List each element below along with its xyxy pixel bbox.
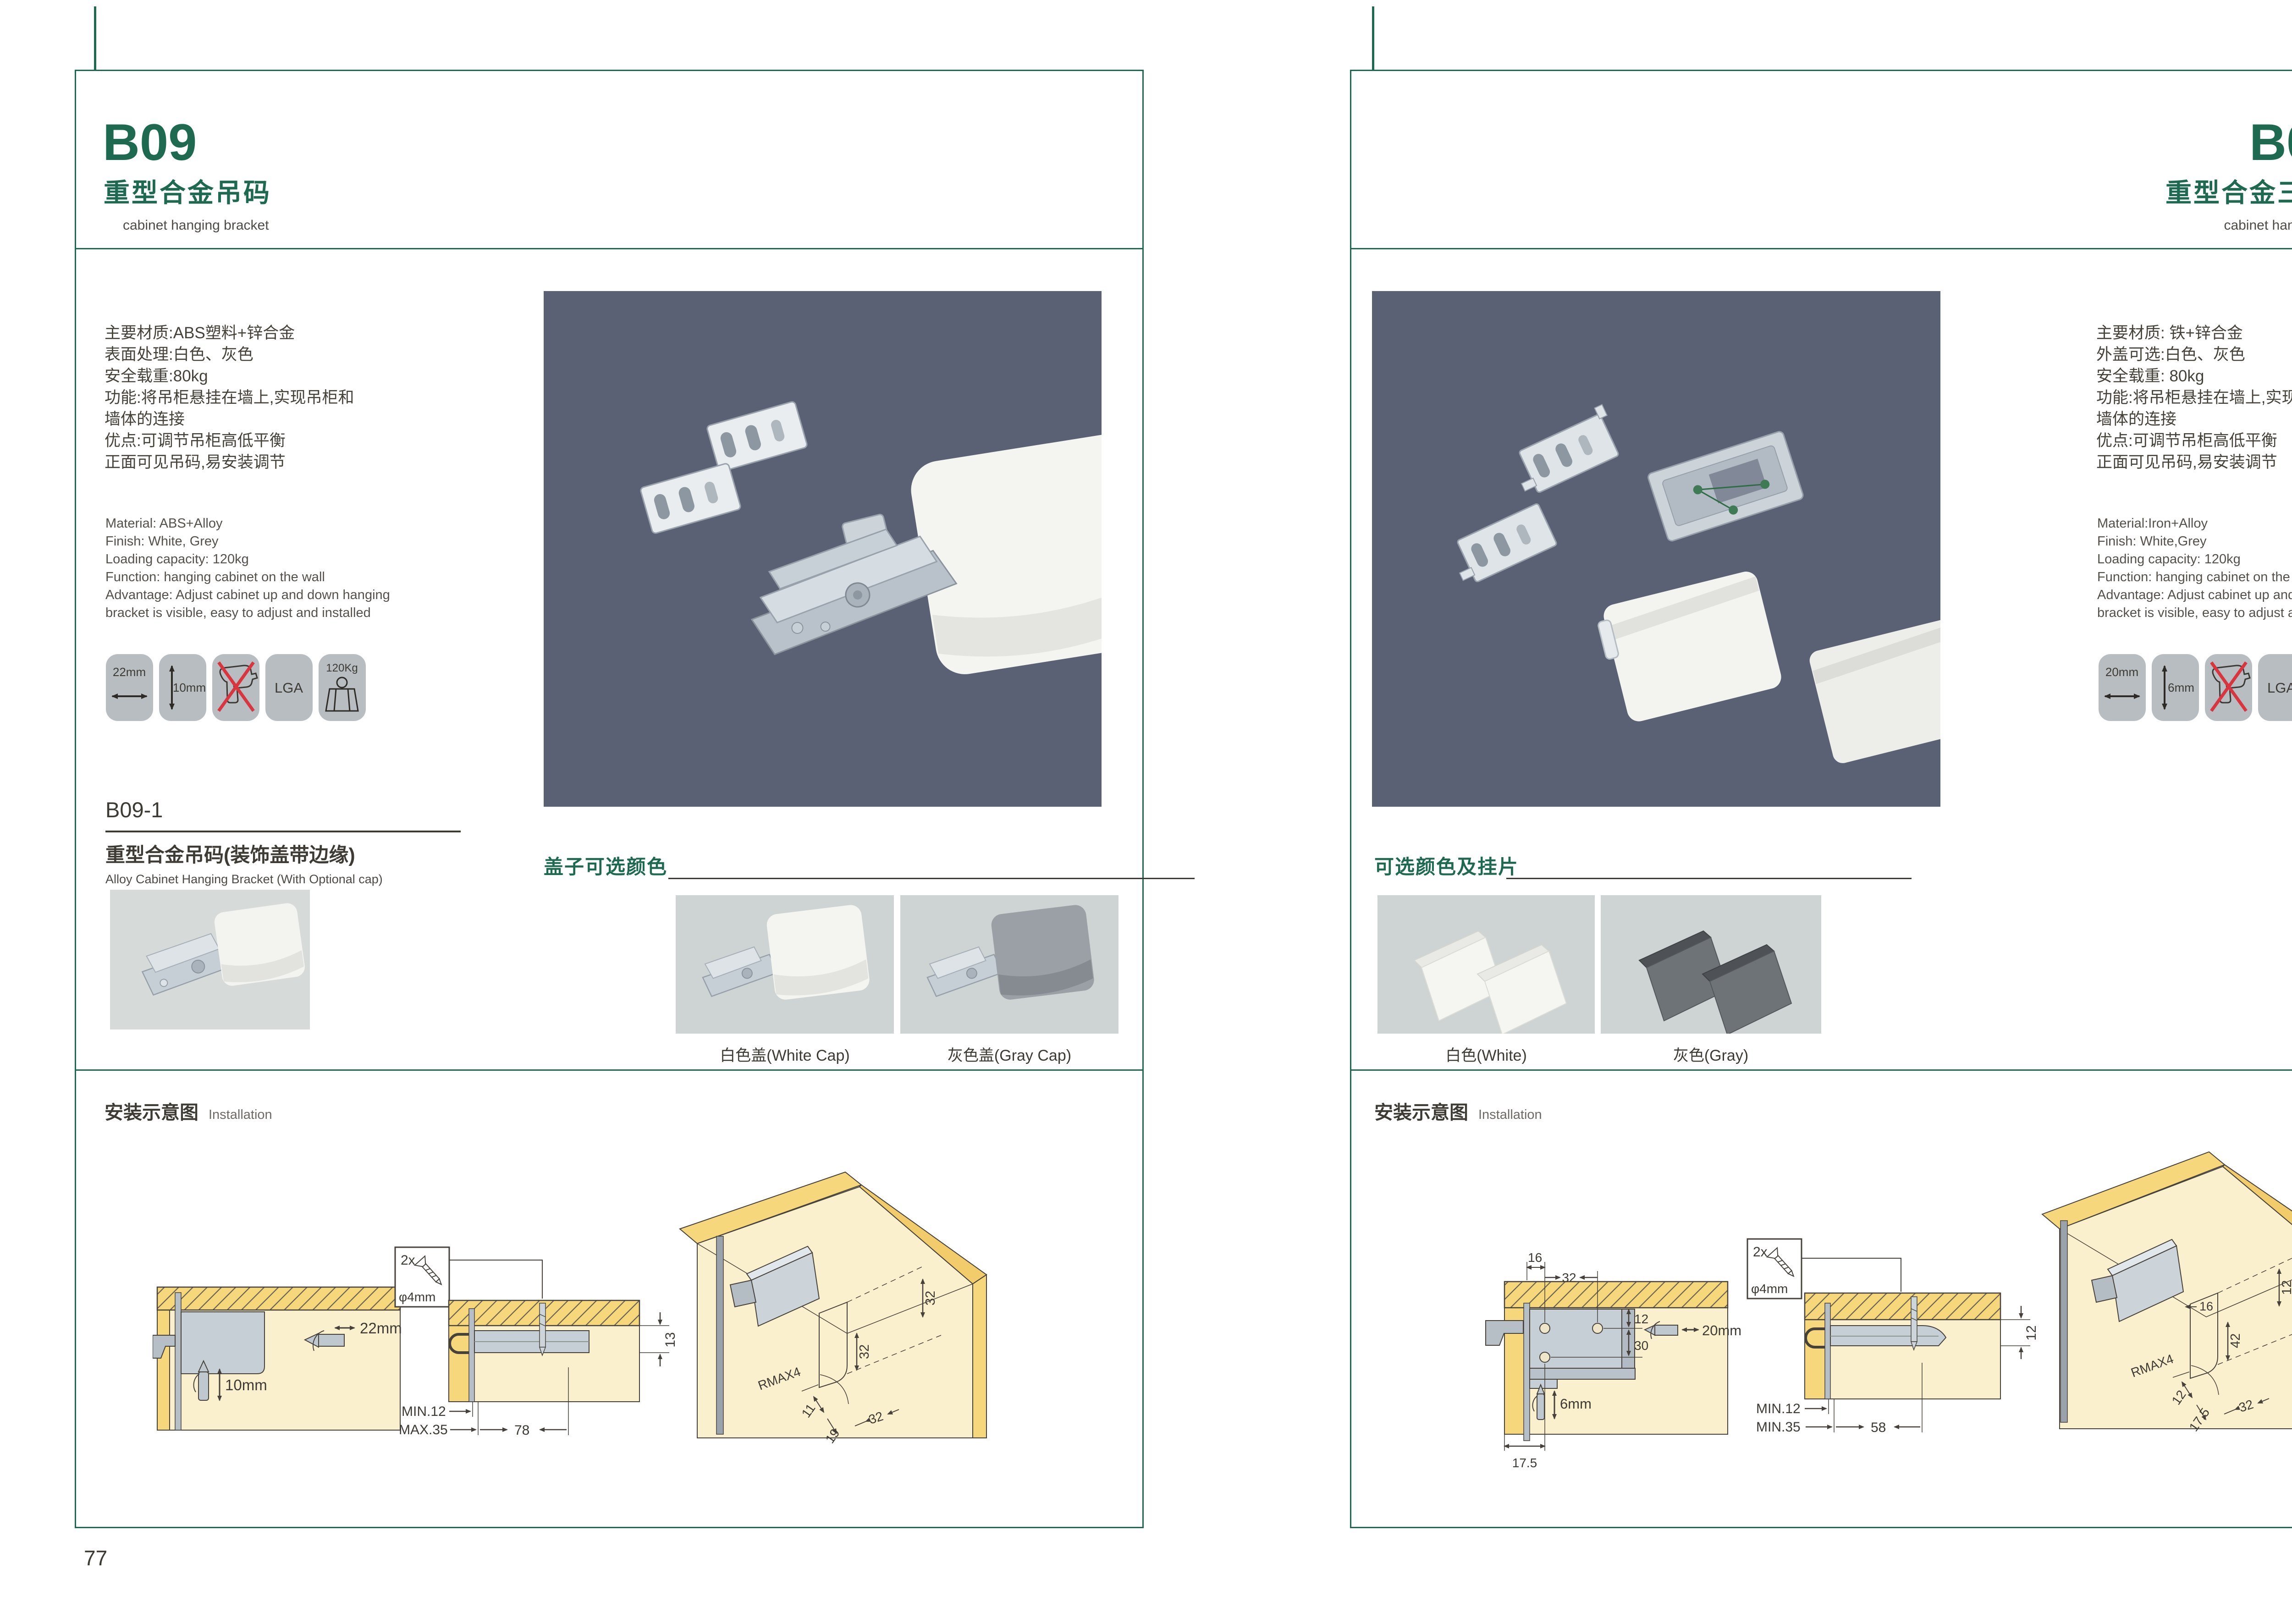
svg-text:22mm: 22mm: [113, 665, 146, 679]
feature-icons: 20mm 6mm: [2099, 654, 2292, 721]
install-diagram-perspective: 12 16 42 RMAX4 12 17.5 32: [2039, 1124, 2292, 1493]
svg-text:16: 16: [1528, 1250, 1542, 1265]
svg-text:MIN.12: MIN.12: [1756, 1401, 1801, 1416]
gray-cap-label: 灰色盖(Gray Cap): [948, 1043, 1071, 1065]
width-icon: 22mm: [106, 654, 153, 721]
white-cap-photo: [676, 895, 894, 1034]
product-title-cn: 重型合金吊码: [104, 180, 271, 206]
depth-icon: 6mm: [2152, 654, 2199, 721]
install-divider: [76, 1069, 1142, 1071]
svg-text:120Kg: 120Kg: [326, 662, 358, 674]
header-divider: [1351, 248, 2292, 249]
install-title-en: Installation: [209, 1107, 272, 1123]
crop-mark-left: [94, 6, 96, 70]
no-drill-icon: [2205, 654, 2252, 721]
specs-english: Material: ABS+Alloy Finish: White, Grey …: [105, 515, 390, 622]
svg-text:12: 12: [1634, 1312, 1648, 1326]
svg-text:10mm: 10mm: [173, 681, 206, 694]
gray-option-label: 灰色(Gray): [1673, 1043, 1748, 1065]
white-cap-label: 白色盖(White Cap): [720, 1043, 849, 1065]
svg-text:φ4mm: φ4mm: [1751, 1282, 1788, 1296]
sub-product-title-cn: 重型合金吊码(装饰盖带边缘): [105, 846, 355, 865]
caps-section-rule: [1506, 878, 1912, 879]
caps-section-rule: [668, 878, 1195, 879]
sub-product-title-en: Alloy Cabinet Hanging Bracket (With Opti…: [105, 873, 383, 886]
svg-text:MAX.35: MAX.35: [399, 1422, 448, 1437]
svg-text:78: 78: [514, 1423, 529, 1438]
svg-text:10mm: 10mm: [225, 1376, 267, 1393]
install-divider: [1351, 1069, 2292, 1071]
svg-text:2x: 2x: [401, 1253, 415, 1268]
specs-english: Material:Iron+Alloy Finish: White,Grey L…: [2097, 515, 2292, 622]
catalog-spread: B09 重型合金吊码 cabinet hanging bracket 主要材质:…: [0, 0, 2292, 1624]
svg-text:LGA: LGA: [275, 680, 303, 696]
install-title-en: Installation: [1478, 1107, 1542, 1123]
sub-product-code: B09-1: [105, 799, 163, 820]
svg-text:LGA: LGA: [2267, 680, 2292, 696]
product-code: B09: [103, 117, 197, 168]
svg-text:58: 58: [1871, 1420, 1886, 1435]
no-drill-icon: [212, 654, 259, 721]
install-diagram-dimensions: 2x φ4mm: [1739, 1234, 2069, 1457]
product-title-cn: 重型合金三孔吊码: [2165, 180, 2292, 206]
svg-text:32: 32: [1562, 1271, 1576, 1285]
sub-product-rule: [105, 831, 461, 832]
page-78: B09-3 重型合金三孔吊码 cabinet hanging bracket 主…: [1350, 70, 2292, 1528]
svg-text:φ4mm: φ4mm: [399, 1290, 435, 1304]
product-title-en: cabinet hanging bracket: [123, 219, 269, 232]
main-product-photo: [1372, 291, 1940, 807]
product-code: B09-3: [2249, 117, 2292, 168]
page-77: B09 重型合金吊码 cabinet hanging bracket 主要材质:…: [75, 70, 1144, 1528]
svg-text:20mm: 20mm: [2105, 665, 2138, 679]
svg-text:12: 12: [2280, 1280, 2292, 1295]
install-title-cn: 安装示意图: [1374, 1097, 1468, 1124]
product-title-en: cabinet hanging bracket: [2224, 219, 2292, 232]
width-icon: 20mm: [2099, 654, 2146, 721]
page-number-left: 77: [84, 1546, 107, 1570]
svg-text:42: 42: [2228, 1333, 2243, 1348]
svg-text:12: 12: [2024, 1325, 2039, 1340]
white-option-label: 白色(White): [1445, 1043, 1527, 1065]
install-header: 安装示意图 Installation: [105, 1097, 272, 1124]
svg-text:32: 32: [923, 1291, 938, 1305]
svg-text:17.5: 17.5: [1512, 1456, 1537, 1470]
specs-chinese: 主要材质: 铁+锌合金 外盖可选:白色、灰色 安全载重: 80kg 功能:将吊柜…: [2096, 322, 2292, 473]
svg-text:6mm: 6mm: [1560, 1396, 1592, 1412]
sub-product-photo: [110, 890, 310, 1029]
gray-cap-photo: [900, 895, 1118, 1034]
svg-text:MIN.12: MIN.12: [402, 1404, 446, 1419]
crop-mark-right: [1372, 6, 1374, 70]
svg-text:20mm: 20mm: [1702, 1322, 1741, 1338]
lga-badge: LGA: [265, 654, 313, 721]
lga-badge: LGA: [2258, 654, 2292, 721]
depth-icon: 10mm: [159, 654, 206, 721]
main-product-photo: [544, 291, 1102, 807]
install-title-cn: 安装示意图: [105, 1097, 198, 1124]
header-divider: [76, 248, 1142, 249]
caps-section-title: 可选颜色及挂片: [1374, 858, 1519, 877]
white-option-photo: [1377, 895, 1595, 1034]
feature-icons: 22mm 10mm: [106, 654, 366, 721]
specs-chinese: 主要材质:ABS塑料+锌合金 表面处理:白色、灰色 安全载重:80kg 功能:将…: [105, 322, 354, 473]
install-diagram-perspective: 32 32 RMAX4 11 19 32: [666, 1134, 1014, 1503]
install-diagram-front-section: 16 32 12 30 20mm 6mm: [1477, 1248, 1762, 1480]
svg-text:2x: 2x: [1753, 1244, 1768, 1260]
svg-text:6mm: 6mm: [2168, 681, 2194, 694]
svg-text:32: 32: [857, 1344, 872, 1359]
caps-section-title: 盖子可选颜色: [544, 858, 667, 877]
svg-text:30: 30: [1634, 1338, 1648, 1353]
weight-icon: 120Kg: [319, 654, 366, 721]
svg-text:MIN.35: MIN.35: [1756, 1420, 1801, 1435]
install-diagram-side-section: 22mm 10mm: [153, 1249, 409, 1448]
install-header: 安装示意图 Installation: [1374, 1097, 1542, 1124]
gray-option-photo: [1601, 895, 1821, 1034]
svg-text:16: 16: [2199, 1299, 2213, 1313]
